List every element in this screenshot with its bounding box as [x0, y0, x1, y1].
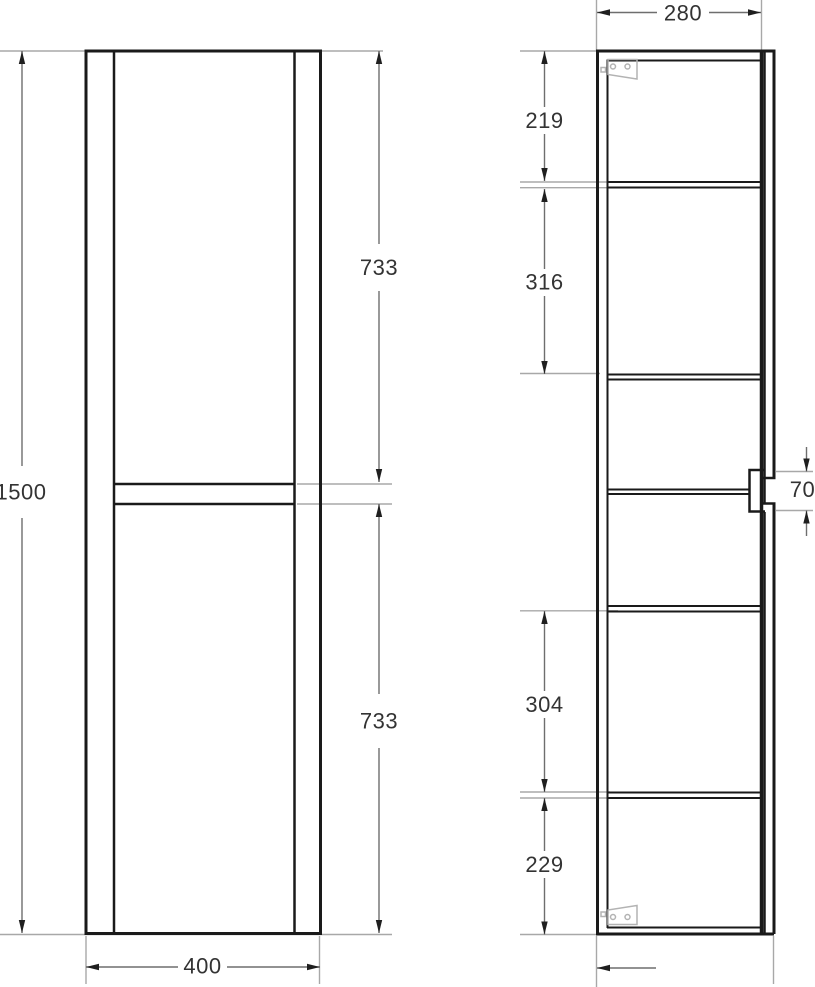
arrow-down-icon [19, 920, 25, 933]
dim-label-section-upper-mid: 316 [525, 270, 563, 295]
bracket-hole [611, 64, 616, 69]
arrow-up-icon [541, 611, 547, 624]
drawing-canvas: 1500 733 733 400 280 219 [0, 0, 815, 987]
arrow-up-icon [803, 511, 809, 524]
dim-label-section-top: 219 [525, 108, 563, 133]
arrow-down-icon [541, 779, 547, 792]
corner-bracket-icon [601, 60, 637, 80]
dim-label-handle: 70 [790, 477, 815, 502]
front-view [86, 51, 321, 934]
arrow-down-icon [803, 459, 809, 472]
dim-label-height: 1500 [0, 480, 46, 505]
dim-upper-door: 733 [360, 51, 398, 482]
bracket-hole [611, 915, 616, 920]
dim-handle: 70 [790, 447, 815, 536]
arrow-up-icon [376, 504, 382, 517]
arrow-right-icon [307, 964, 320, 970]
arrow-down-icon [376, 920, 382, 933]
arrow-up-icon [376, 51, 382, 64]
arrow-up-icon [541, 798, 547, 811]
arrow-left-icon [86, 964, 99, 970]
dim-depth-bottom-partial [597, 965, 656, 971]
dim-label-lower-door: 733 [360, 709, 398, 734]
arrow-down-icon [541, 361, 547, 374]
arrow-down-icon [541, 922, 547, 935]
dim-overall-height: 1500 [0, 51, 46, 933]
dim-section-219: 219 [525, 51, 563, 181]
shelves [607, 182, 761, 798]
arrow-down-icon [541, 168, 547, 181]
arrow-left-icon [597, 965, 610, 971]
dim-depth: 280 [597, 1, 761, 26]
arrow-right-icon [748, 9, 761, 15]
dim-label-depth: 280 [664, 1, 702, 26]
dim-label-width: 400 [183, 954, 221, 979]
dim-section-316: 316 [525, 189, 563, 374]
dim-label-section-bottom: 229 [525, 852, 563, 877]
arrow-down-icon [376, 469, 382, 482]
dim-label-section-lower-mid: 304 [525, 692, 563, 717]
bracket-hole [625, 64, 630, 69]
arrow-up-icon [541, 51, 547, 64]
dim-label-upper-door: 733 [360, 255, 398, 280]
side-view [596, 50, 776, 936]
bracket-clip [601, 912, 606, 917]
cabinet-technical-drawing: 1500 733 733 400 280 219 [0, 0, 815, 987]
arrow-left-icon [597, 9, 610, 15]
front-cabinet-outline [86, 51, 321, 934]
corner-bracket-icon [601, 906, 637, 925]
dim-section-304: 304 [525, 611, 563, 792]
arrow-up-icon [541, 189, 547, 202]
arrow-up-icon [19, 51, 25, 64]
dim-lower-door: 733 [360, 504, 398, 933]
dim-overall-width: 400 [86, 954, 320, 979]
bracket-hole [625, 915, 630, 920]
bracket-clip [601, 68, 606, 73]
dim-section-229: 229 [525, 798, 563, 935]
